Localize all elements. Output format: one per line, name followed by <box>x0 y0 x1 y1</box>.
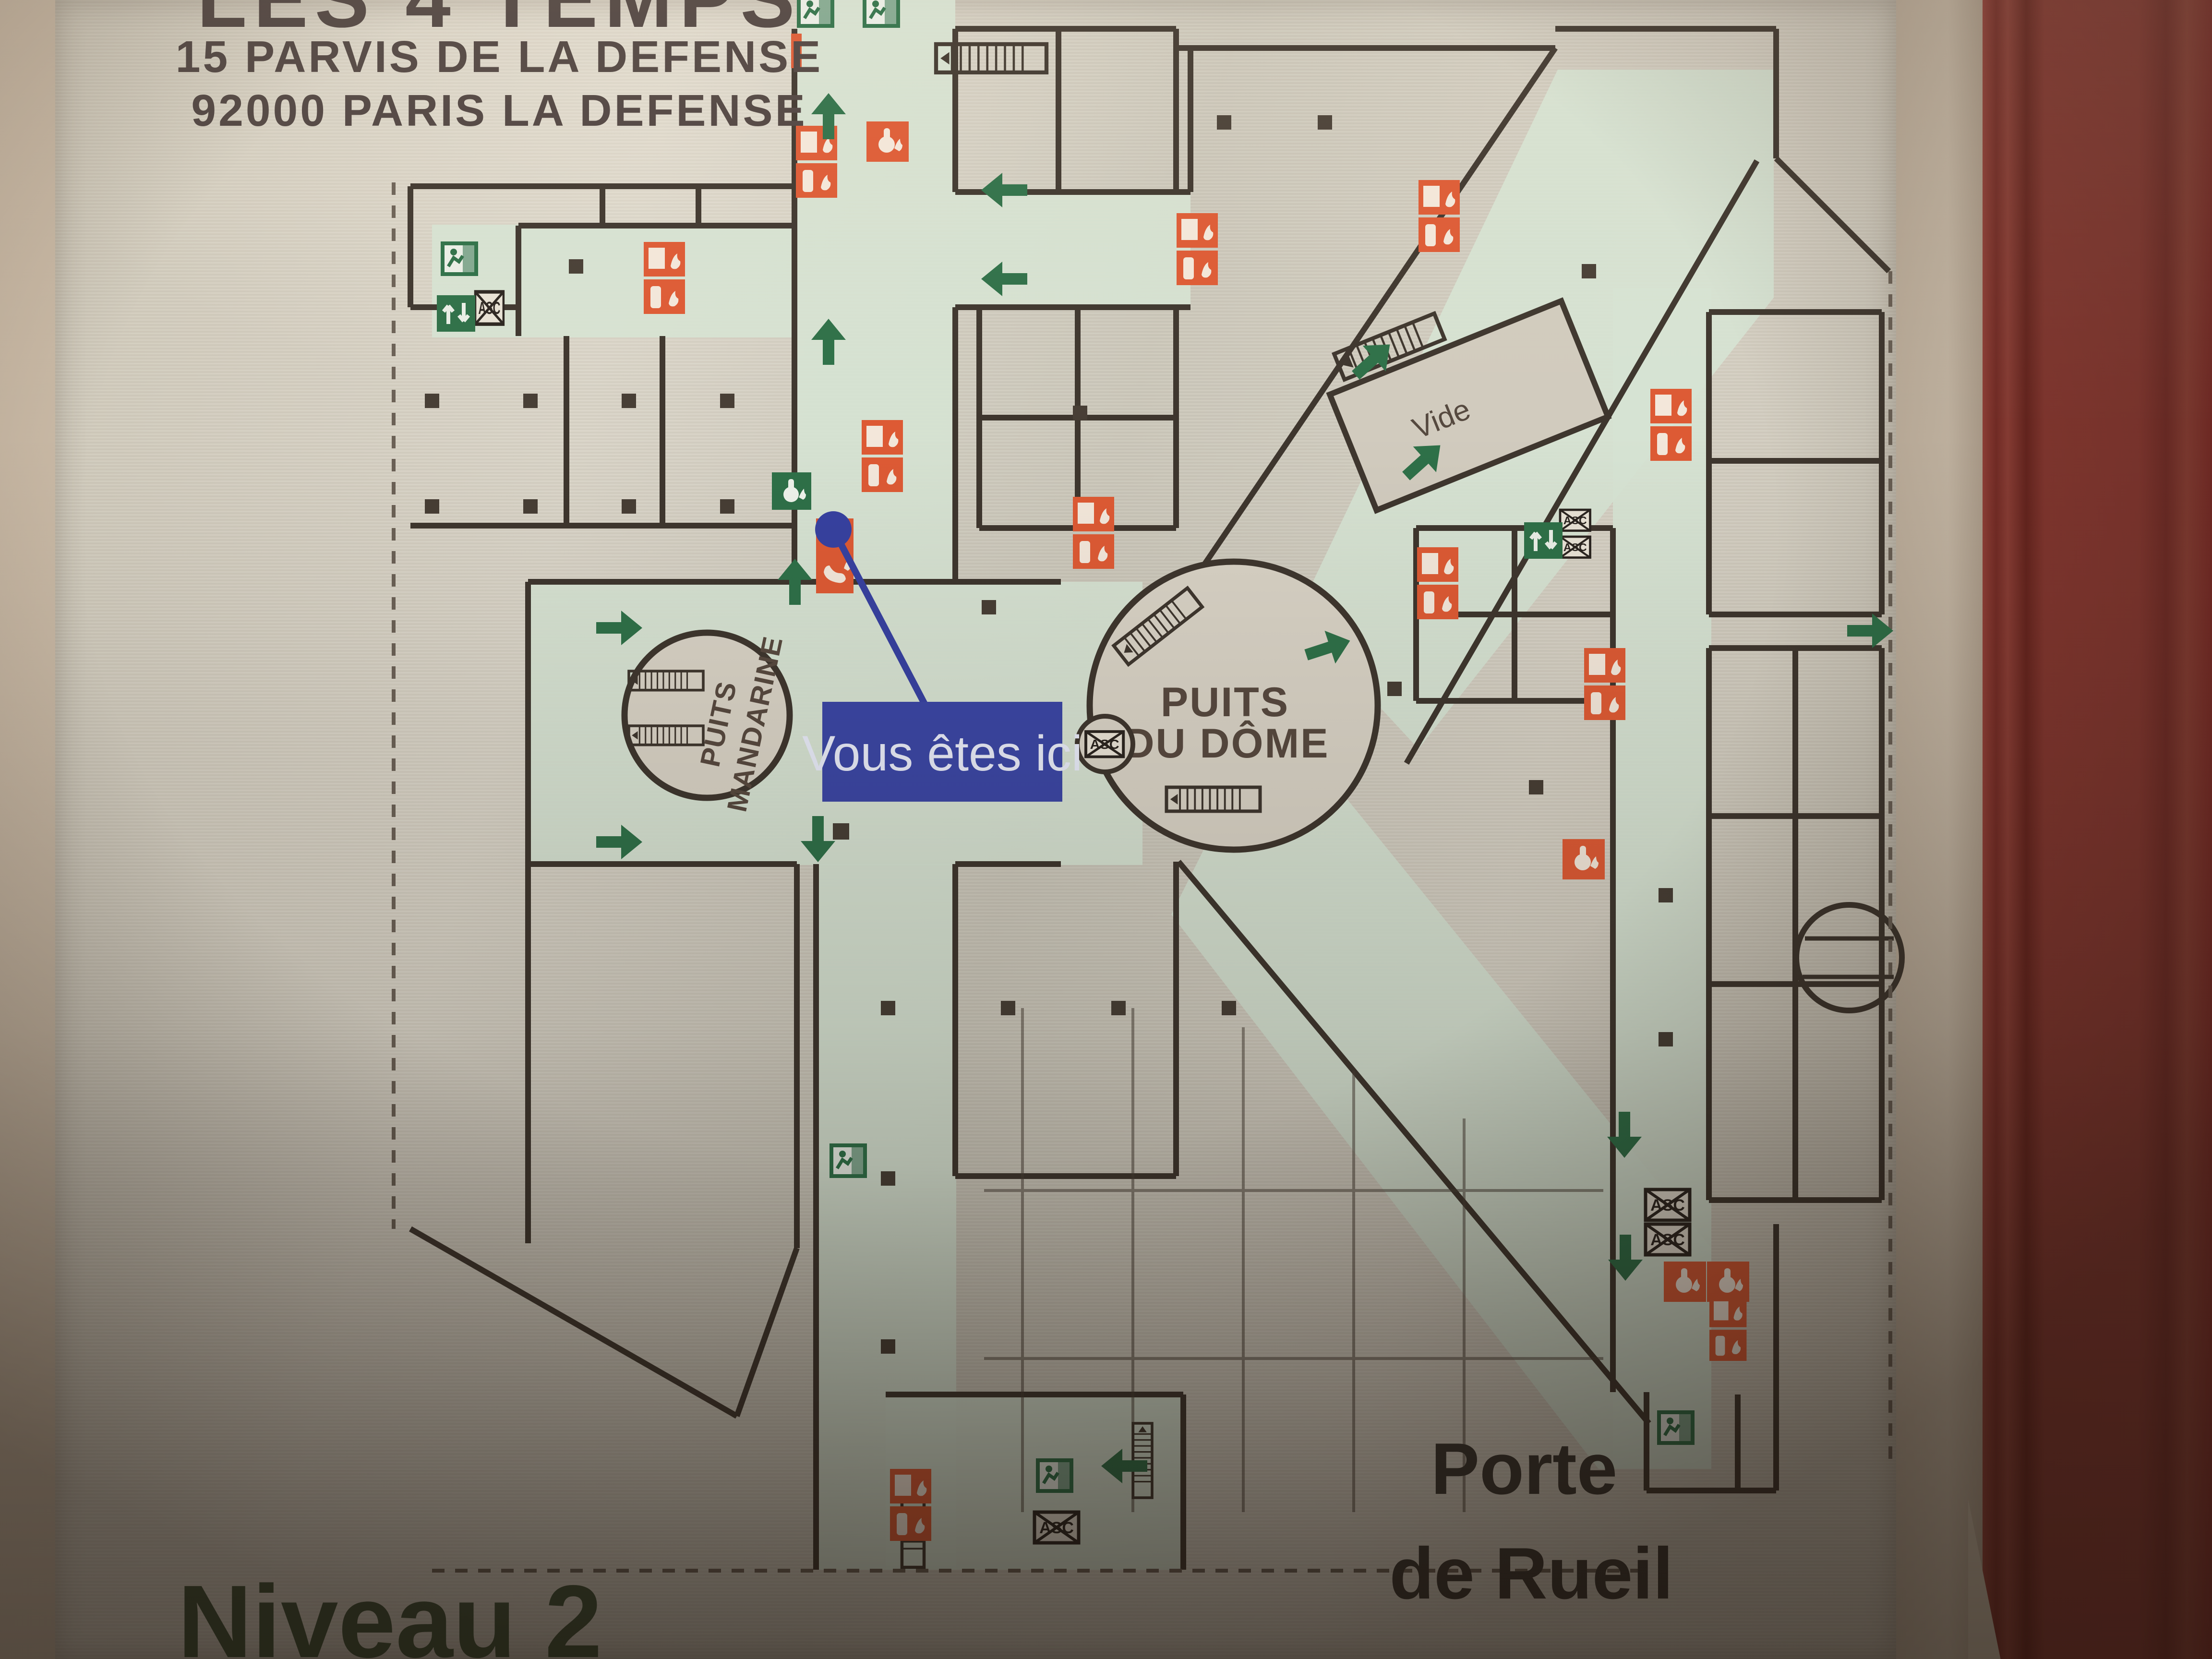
emergency-exit-icon <box>441 241 478 276</box>
elevator-icon <box>1034 1512 1079 1543</box>
elevator-icon <box>1560 537 1590 558</box>
fire-hose-extinguisher-icon <box>1073 497 1114 569</box>
alarm-call-point-icon <box>866 121 909 162</box>
emergency-exit-icon <box>1657 1410 1695 1445</box>
emergency-exit-icon <box>797 0 834 28</box>
emergency-exit-icon <box>863 0 900 28</box>
elevator-icon <box>1646 1190 1690 1220</box>
fire-hose-extinguisher-icon <box>1709 1296 1746 1361</box>
elevator-icon <box>1086 732 1123 757</box>
elevator-icon <box>475 292 504 324</box>
emergency-exit-icon <box>829 1143 867 1178</box>
porte-de-rueil-line2: de Rueil <box>1389 1533 1673 1614</box>
elevator-icon <box>1560 510 1590 531</box>
floor-plan-map: ASC <box>0 0 2212 1659</box>
alarm-call-point-icon <box>1664 1262 1706 1302</box>
address-line1: 15 PARVIS DE LA DEFENSE <box>176 32 823 82</box>
level-label: Niveau 2 <box>178 1563 602 1659</box>
green-call-point-icon <box>772 472 811 510</box>
puits-du-dome-label-line2: DU DÔME <box>1124 721 1329 767</box>
photo-scene: ASC <box>0 0 2212 1659</box>
stairs-direction-icon <box>1524 522 1563 559</box>
arrow-right-icon <box>1847 613 1893 648</box>
alarm-call-point-icon <box>1563 839 1605 879</box>
address-line2: 92000 PARIS LA DEFENSE <box>191 85 807 135</box>
emergency-exit-icon <box>1036 1458 1073 1493</box>
you-are-here-dot <box>815 511 852 548</box>
alarm-call-point-icon <box>1707 1262 1749 1302</box>
stairs-direction-icon <box>437 295 475 332</box>
puits-du-dome-label-line1: PUITS <box>1161 679 1289 725</box>
elevator-icon <box>1646 1224 1690 1255</box>
porte-de-rueil-line1: Porte <box>1431 1428 1618 1510</box>
escalator-icon <box>936 44 1046 72</box>
you-are-here-label: Vous êtes ici <box>802 726 1082 781</box>
